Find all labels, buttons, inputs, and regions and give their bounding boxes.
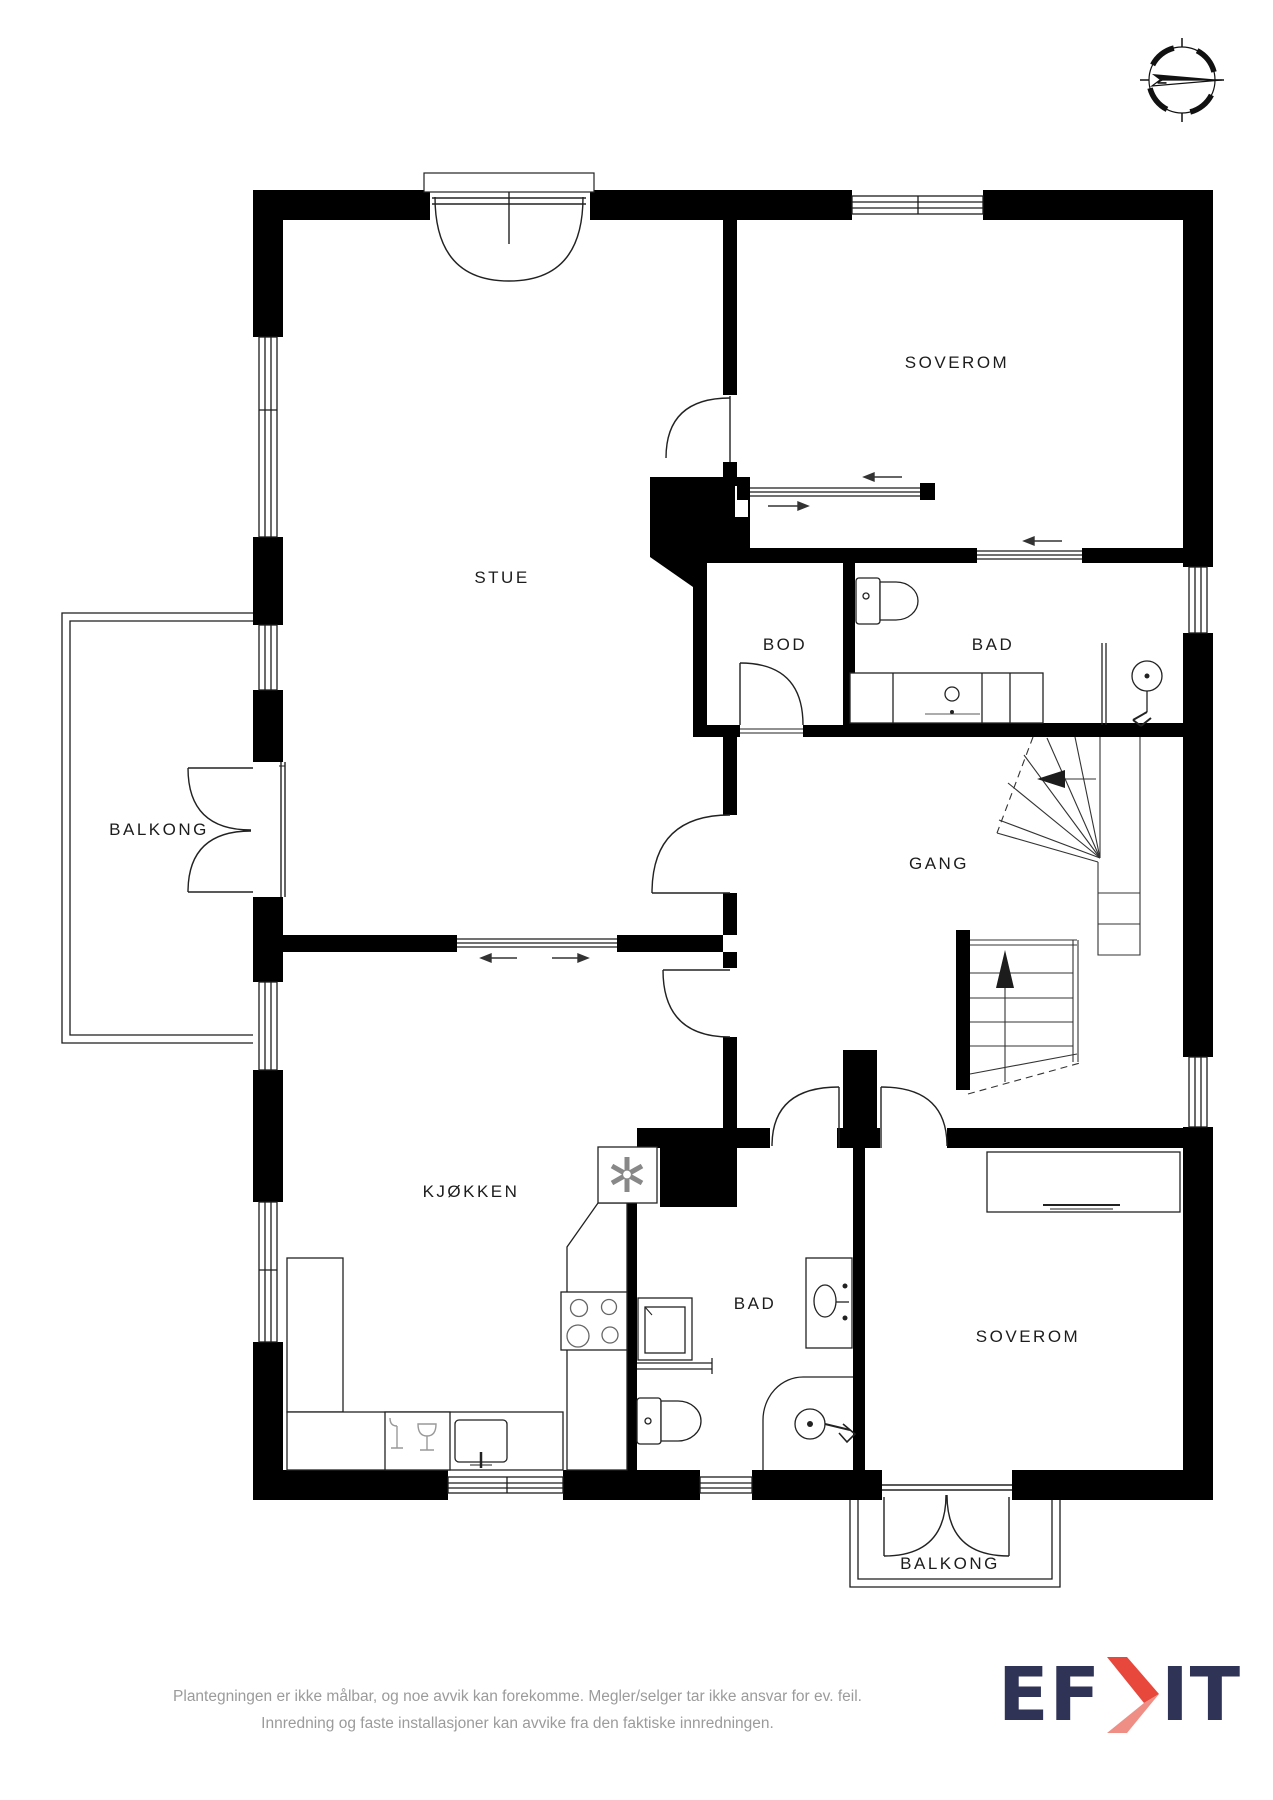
window (852, 196, 983, 214)
stove (561, 1292, 627, 1350)
room-label-balkong-1: BALKONG (109, 820, 209, 839)
sliding-door-track (457, 939, 617, 947)
window (259, 1202, 277, 1342)
sliding-door-track (977, 551, 1082, 559)
logo-letters-left: EF (998, 1658, 1101, 1732)
logo-chevron-icon (1105, 1657, 1159, 1733)
toilet (637, 1398, 701, 1444)
door-gang-kjokken (663, 970, 730, 1037)
disclaimer-line-2: Innredning og faste installasjoner kan a… (52, 1711, 983, 1738)
door-gang-bad2 (772, 1087, 839, 1148)
room-label-stue: STUE (474, 568, 529, 587)
room-label-balkong-2: BALKONG (900, 1554, 1000, 1573)
window (448, 1477, 563, 1493)
stair-down-arrow-icon (1037, 770, 1065, 788)
balcony-door-bottom (882, 1485, 1012, 1556)
shower (1102, 643, 1162, 726)
window (1189, 567, 1207, 633)
door-stue-soverom (666, 396, 730, 462)
arrow-right-icon (768, 502, 808, 510)
door-gang-soverom2 (881, 1087, 947, 1148)
room-label-soverom-2: SOVEROM (976, 1327, 1080, 1346)
room-label-bad-2: BAD (734, 1294, 776, 1313)
disclaimer-line-1: Plantegningen er ikke målbar, og noe avv… (52, 1684, 983, 1711)
room-label-kjokken: KJØKKEN (423, 1182, 520, 1201)
dishwasher (385, 1412, 450, 1470)
kitchen-tall-cabinet (287, 1258, 343, 1412)
window (1189, 1057, 1207, 1127)
door-bod (740, 663, 803, 733)
bathroom-counter (850, 673, 1043, 723)
kitchen-sink (455, 1420, 507, 1468)
floorplan-drawing: N SOVEROM STUE BOD BAD BALKONG GANG KJØK… (0, 0, 1273, 1800)
stair-up-arrow-icon (996, 950, 1014, 988)
efkt-logo: EF IT (998, 1652, 1241, 1738)
washing-machine (638, 1298, 692, 1360)
window (259, 982, 277, 1070)
logo-letters-right: IT (1161, 1658, 1241, 1732)
straight-stair-up (968, 940, 1080, 1094)
interior-walls (283, 220, 1183, 1470)
arrow-left-icon (1024, 537, 1062, 545)
room-label-gang: GANG (909, 854, 969, 873)
arrow-left-icon (864, 473, 902, 481)
arrow-left-icon (481, 954, 517, 962)
sliding-door-track (750, 488, 920, 496)
room-label-bod: BOD (763, 635, 807, 654)
window (259, 337, 277, 537)
stairs (968, 737, 1140, 1094)
door-gang-stue (652, 815, 730, 893)
balcony-rail-bottom (850, 1500, 1060, 1587)
wardrobe (987, 1152, 1180, 1212)
arrow-right-icon (552, 954, 588, 962)
corner-shower (763, 1377, 855, 1470)
window (700, 1477, 752, 1493)
compass-icon: N (1138, 36, 1227, 125)
window (259, 625, 277, 690)
room-label-soverom-1: SOVEROM (905, 353, 1009, 372)
toilet (856, 578, 918, 624)
winder-stair-down (997, 737, 1140, 955)
entrance-double-door (424, 173, 594, 281)
room-label-bad-1: BAD (972, 635, 1014, 654)
compass-north-label: N (1155, 75, 1170, 84)
floorplan-page: N SOVEROM STUE BOD BAD BALKONG GANG KJØK… (0, 0, 1273, 1800)
bathroom-sink (806, 1258, 852, 1348)
disclaimer: Plantegningen er ikke målbar, og noe avv… (52, 1684, 983, 1737)
extractor-fan (598, 1147, 657, 1203)
